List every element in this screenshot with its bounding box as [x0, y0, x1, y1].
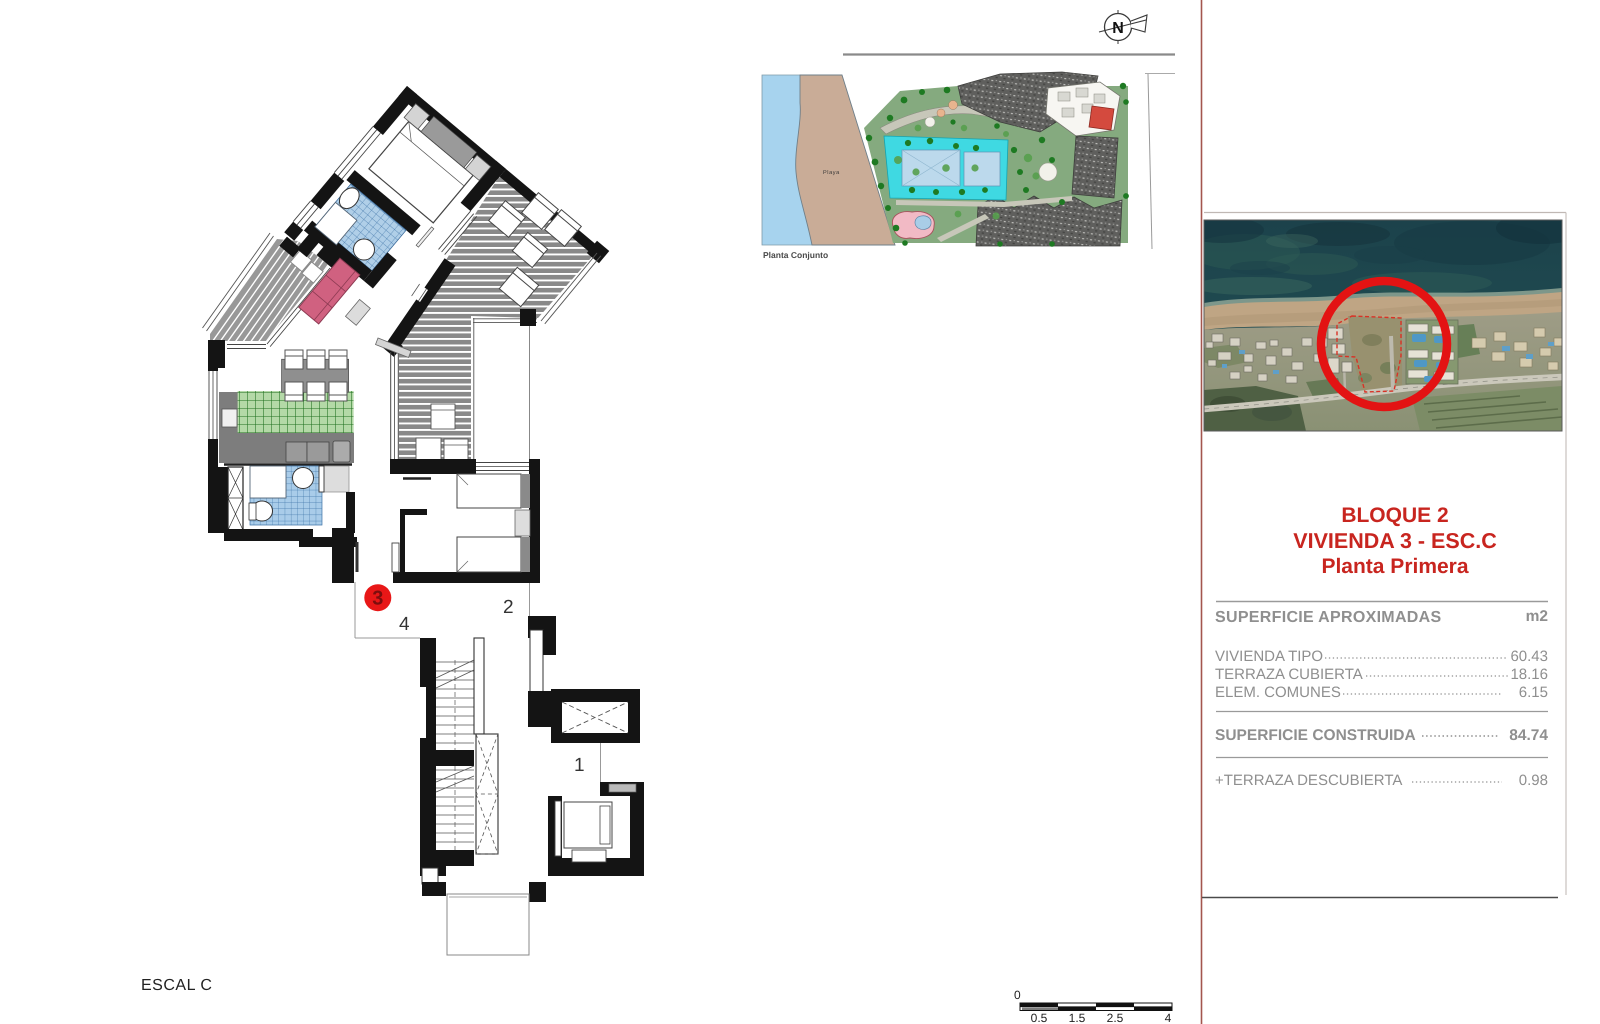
svg-text:2.5: 2.5	[1107, 1011, 1124, 1024]
svg-text:BLOQUE 2: BLOQUE 2	[1341, 504, 1448, 527]
svg-text:4: 4	[399, 614, 410, 635]
svg-text:m2: m2	[1526, 608, 1548, 625]
svg-text:18.16: 18.16	[1510, 666, 1548, 683]
svg-text:ELEM. COMUNES: ELEM. COMUNES	[1215, 684, 1341, 701]
svg-text:SUPERFICIE APROXIMADAS: SUPERFICIE APROXIMADAS	[1215, 609, 1442, 626]
svg-text:1: 1	[574, 755, 585, 776]
svg-text:84.74: 84.74	[1509, 727, 1548, 744]
svg-text:VIVIENDA TIPO: VIVIENDA TIPO	[1215, 648, 1323, 665]
svg-text:ESCAL C: ESCAL C	[141, 977, 212, 994]
svg-text:0.5: 0.5	[1031, 1011, 1048, 1024]
svg-text:60.43: 60.43	[1510, 648, 1548, 665]
svg-text:N: N	[1112, 20, 1124, 37]
svg-text:2: 2	[503, 597, 514, 618]
svg-text:1.5: 1.5	[1069, 1011, 1086, 1024]
svg-text:Planta Primera: Planta Primera	[1321, 555, 1468, 578]
svg-text:4: 4	[1165, 1011, 1172, 1024]
svg-text:Playa: Playa	[823, 170, 840, 176]
svg-text:SUPERFICIE CONSTRUIDA: SUPERFICIE CONSTRUIDA	[1215, 727, 1416, 744]
svg-text:3: 3	[372, 588, 383, 610]
svg-text:6.15: 6.15	[1519, 684, 1548, 701]
svg-text:TERRAZA CUBIERTA: TERRAZA CUBIERTA	[1215, 666, 1363, 683]
svg-text:0: 0	[1014, 988, 1021, 1002]
svg-text:+TERRAZA DESCUBIERTA: +TERRAZA DESCUBIERTA	[1215, 772, 1402, 789]
svg-text:0.98: 0.98	[1519, 772, 1548, 789]
svg-text:Planta Conjunto: Planta Conjunto	[763, 250, 828, 260]
svg-text:VIVIENDA 3 - ESC.C: VIVIENDA 3 - ESC.C	[1293, 529, 1497, 553]
